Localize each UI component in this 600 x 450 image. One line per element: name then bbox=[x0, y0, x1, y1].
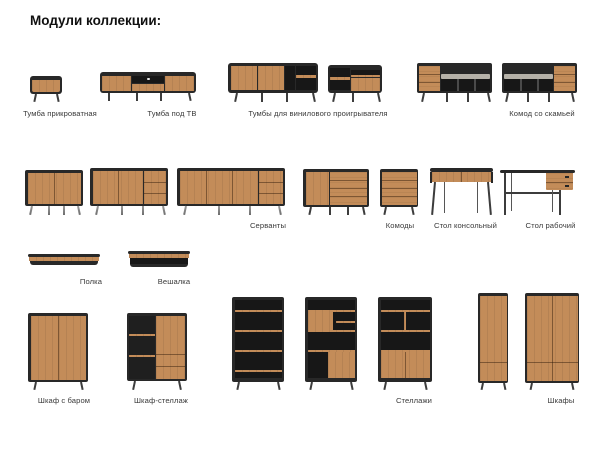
cab-shelv-leg bbox=[132, 381, 136, 390]
console-leg bbox=[431, 181, 435, 214]
label-racks: Стеллажи bbox=[374, 396, 454, 405]
furniture-dresser-wide bbox=[303, 169, 369, 215]
vinyl-a-door bbox=[258, 66, 284, 90]
label-desk: Стол рабочий bbox=[498, 221, 600, 230]
console-leg bbox=[444, 182, 445, 213]
bench-b-leg bbox=[548, 93, 550, 102]
furniture-rack-doors bbox=[378, 297, 432, 390]
sideboard-s-doors bbox=[28, 173, 81, 204]
bench-b-leg bbox=[527, 93, 529, 102]
furniture-tv-stand bbox=[100, 72, 196, 101]
dresser-w-leg bbox=[347, 207, 349, 215]
tv-leg bbox=[108, 93, 110, 101]
sideboard-m-doors bbox=[93, 171, 143, 204]
vinyl-a-shelf bbox=[296, 75, 316, 78]
furniture-dresser-narrow bbox=[380, 169, 418, 215]
label-bench-chest: Комод со скамьей bbox=[487, 109, 597, 118]
furniture-bench-chest-right bbox=[502, 63, 577, 102]
sideboard-m-leg bbox=[121, 206, 123, 215]
dresser-w-leg bbox=[329, 207, 331, 215]
furniture-sideboard-small bbox=[25, 170, 83, 215]
vinyl-a-door bbox=[231, 66, 257, 90]
sideboard-l-doors bbox=[180, 171, 258, 204]
sideboard-m-leg bbox=[162, 206, 166, 215]
dresser-n-leg bbox=[411, 207, 415, 215]
wardrobe-w-doors bbox=[527, 296, 578, 381]
furniture-sideboard-medium bbox=[90, 168, 168, 215]
tv-speaker-dot bbox=[147, 78, 150, 81]
bench-a-leg bbox=[467, 93, 469, 102]
furniture-sideboard-large bbox=[177, 168, 285, 215]
desk-leg bbox=[559, 190, 561, 215]
vinyl-b-leg bbox=[352, 93, 354, 102]
label-bar-cabinet: Шкаф с баром bbox=[14, 396, 114, 405]
furniture-desk bbox=[500, 170, 575, 215]
vinyl-a-niche bbox=[285, 66, 295, 90]
vinyl-a-leg bbox=[261, 93, 263, 102]
furniture-bedside-table bbox=[30, 76, 62, 102]
console-leg bbox=[487, 181, 491, 214]
rack3-leg bbox=[424, 382, 428, 390]
wardrobe-n-door bbox=[480, 296, 507, 381]
rack1-leg bbox=[236, 382, 240, 390]
rack1-leg bbox=[277, 382, 281, 390]
bench-a-drawers bbox=[419, 66, 440, 91]
label-vinyl-stands: Тумбы для винилового проигрывателя bbox=[218, 109, 418, 118]
cab-shelv-open bbox=[129, 316, 155, 379]
bench-b-leg bbox=[505, 93, 509, 102]
sideboard-m-leg bbox=[142, 206, 144, 215]
wardrobe-w-leg bbox=[571, 383, 574, 390]
tv-door-right bbox=[165, 76, 194, 91]
sideboard-l-leg bbox=[218, 206, 220, 215]
label-cabinet-shelving: Шкаф-стеллаж bbox=[111, 396, 211, 405]
label-hanger: Вешалка bbox=[139, 277, 209, 286]
label-shelf: Полка bbox=[56, 277, 126, 286]
furniture-vinyl-stand-left bbox=[228, 63, 318, 102]
furniture-wall-hanger bbox=[128, 251, 190, 267]
furniture-wardrobe-narrow bbox=[478, 293, 508, 390]
console-side bbox=[491, 172, 493, 183]
sideboard-l-drawers bbox=[259, 171, 283, 204]
vinyl-b-leg bbox=[332, 93, 336, 102]
bench-b-drawers bbox=[554, 66, 575, 91]
furniture-cabinet-shelving bbox=[127, 313, 187, 390]
bench-a-leg bbox=[421, 93, 425, 102]
rack2-leg bbox=[350, 382, 354, 390]
vinyl-a-leg bbox=[312, 93, 316, 102]
dresser-w-door bbox=[306, 172, 329, 205]
furniture-wall-shelf bbox=[28, 254, 100, 266]
shelf-base bbox=[30, 261, 98, 265]
cab-shelv-leg bbox=[178, 381, 182, 390]
page-title: Модули коллекции: bbox=[30, 13, 161, 28]
hanger-base bbox=[130, 264, 188, 267]
desk-drawer-handle bbox=[565, 176, 569, 178]
rack2-small-shelf bbox=[336, 321, 355, 323]
bedside-front bbox=[32, 80, 60, 92]
tv-door-left bbox=[102, 76, 131, 91]
rack2-wood-door bbox=[328, 352, 355, 378]
desk-drawer-handle bbox=[565, 185, 569, 187]
console-side bbox=[430, 172, 432, 183]
rack2-interior bbox=[308, 300, 355, 379]
catalog-page: Модули коллекции: bbox=[0, 0, 600, 450]
sideboard-l-leg bbox=[278, 206, 282, 215]
sideboard-m-drawers bbox=[144, 171, 166, 204]
sideboard-s-leg bbox=[48, 206, 50, 215]
furniture-wardrobe-wide bbox=[525, 293, 579, 390]
dresser-n-drawers bbox=[382, 172, 417, 205]
bench-a-cubbies bbox=[441, 79, 490, 91]
bench-b-cubbies bbox=[504, 79, 553, 91]
rack1-interior bbox=[235, 300, 282, 379]
sideboard-m-leg bbox=[95, 206, 99, 215]
dresser-n-leg bbox=[383, 207, 387, 215]
sideboard-s-leg bbox=[77, 206, 81, 215]
rack3-divider bbox=[404, 312, 406, 330]
bench-b-leg bbox=[571, 93, 575, 102]
rack3-interior bbox=[381, 300, 430, 379]
rack2-wood-box bbox=[308, 312, 333, 330]
furniture-vinyl-stand-right bbox=[328, 65, 382, 102]
wardrobe-n-leg bbox=[503, 383, 506, 390]
vinyl-a-open-section bbox=[296, 66, 316, 90]
dresser-w-drawers bbox=[330, 172, 367, 205]
vinyl-b-leg bbox=[377, 93, 381, 102]
vinyl-a-leg bbox=[234, 93, 238, 102]
rack3-doors bbox=[381, 352, 430, 378]
sideboard-s-leg bbox=[63, 206, 65, 215]
label-wardrobes: Шкафы bbox=[521, 396, 600, 405]
desk-drawer-box bbox=[546, 173, 573, 190]
furniture-rack-open bbox=[232, 297, 284, 390]
rack2-leg bbox=[309, 382, 313, 390]
console-leg bbox=[477, 182, 478, 213]
label-tv-stand: Тумба под ТВ bbox=[122, 109, 222, 118]
vinyl-b-shelf bbox=[330, 77, 350, 80]
bench-a-leg bbox=[446, 93, 448, 102]
label-sideboards: Серванты bbox=[218, 221, 318, 230]
tv-leg bbox=[136, 93, 138, 101]
desk-leg bbox=[552, 190, 553, 212]
tv-leg bbox=[160, 93, 162, 101]
sideboard-l-leg bbox=[183, 206, 187, 215]
sideboard-s-leg bbox=[29, 206, 33, 215]
furniture-rack-mixed bbox=[305, 297, 357, 390]
rack3-leg bbox=[383, 382, 387, 390]
sideboard-l-leg bbox=[249, 206, 251, 215]
furniture-bar-cabinet bbox=[28, 313, 88, 390]
bar-cabinet-leg bbox=[80, 382, 84, 390]
wardrobe-n-leg bbox=[481, 383, 484, 390]
vinyl-a-leg bbox=[286, 93, 288, 102]
console-apron bbox=[432, 172, 492, 182]
furniture-bench-chest-left bbox=[417, 63, 492, 102]
tv-drawer bbox=[132, 84, 164, 91]
bar-cabinet-leg bbox=[33, 382, 37, 390]
vinyl-b-door bbox=[351, 78, 380, 91]
bedside-leg bbox=[56, 94, 60, 102]
dresser-w-leg bbox=[308, 207, 312, 215]
tv-leg bbox=[188, 93, 192, 101]
dresser-w-leg bbox=[362, 207, 366, 215]
bar-cabinet-doors bbox=[31, 316, 86, 380]
bench-a-leg bbox=[487, 93, 491, 102]
cab-shelv-door-drawers bbox=[156, 316, 185, 379]
label-bedside-table: Тумба прикроватная bbox=[10, 109, 110, 118]
desk-leg bbox=[504, 173, 506, 215]
bedside-leg bbox=[33, 94, 37, 102]
wardrobe-w-leg bbox=[530, 383, 533, 390]
furniture-console-table bbox=[430, 168, 493, 215]
